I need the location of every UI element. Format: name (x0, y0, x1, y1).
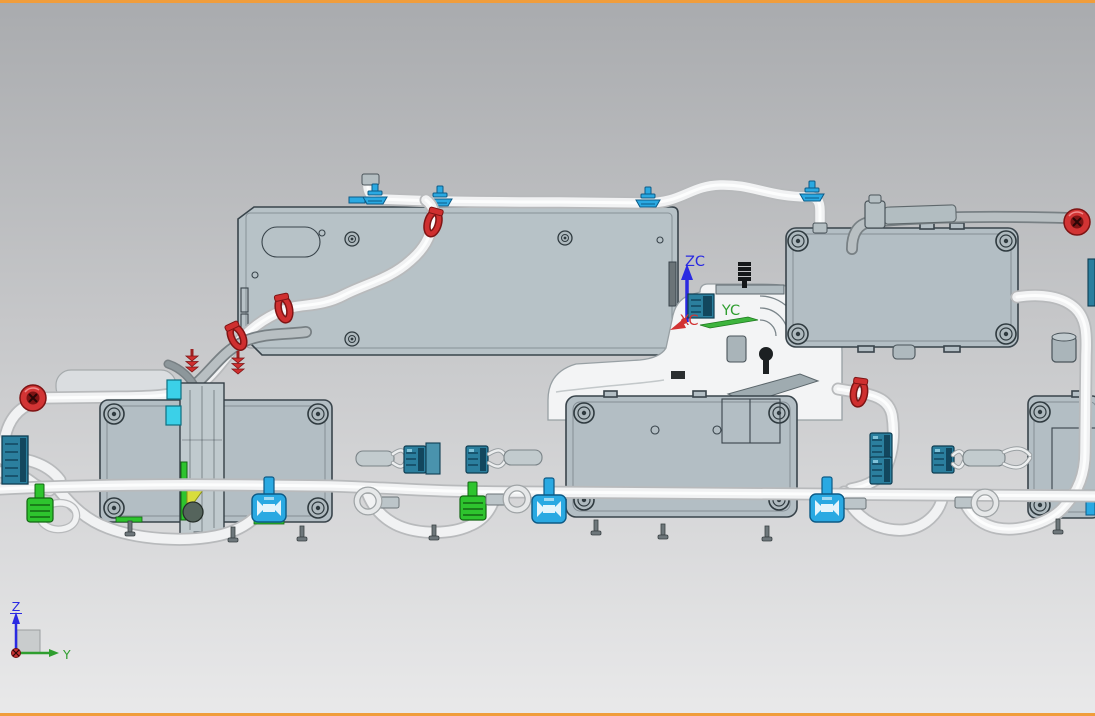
red-grommet-left[interactable] (20, 385, 46, 411)
pipe-foot-right[interactable] (1052, 333, 1076, 362)
module-screw-boss (574, 403, 594, 423)
red-grommet-right[interactable] (1064, 209, 1090, 235)
electrical-connector-teal[interactable] (404, 446, 426, 473)
pipe-sleeve-clamp[interactable] (884, 205, 957, 225)
panel-screw-boss (345, 332, 359, 346)
panel-screw-boss (558, 231, 572, 245)
module-screw-boss (788, 324, 808, 344)
wcs-z-label[interactable]: ZC (685, 254, 705, 270)
electrical-connector-teal[interactable] (466, 446, 488, 473)
hose-clip-small[interactable] (349, 197, 365, 203)
module-screw-boss (1030, 402, 1050, 422)
pipe-bracket[interactable] (865, 201, 885, 228)
viewport-top-border (0, 0, 1095, 3)
csys-plane-square (17, 630, 40, 653)
wcs-x-label[interactable]: XC (679, 313, 698, 329)
viewport-background (0, 0, 1095, 716)
model-scene: ZC YC XC Z Y (0, 0, 1095, 716)
wire-sleeve (356, 451, 394, 466)
module-screw-boss (104, 404, 124, 424)
module-screw-boss (308, 404, 328, 424)
panel-screw-boss (345, 232, 359, 246)
module-screw-boss (996, 231, 1016, 251)
module-screw-boss (769, 403, 789, 423)
connector-block-left-edge[interactable] (2, 436, 28, 484)
cyan-connector[interactable] (166, 406, 181, 425)
housing-cylinder-port (727, 336, 746, 362)
cyan-connector[interactable] (167, 380, 181, 399)
cad-viewport: ZC YC XC Z Y (0, 0, 1095, 716)
wcs-y-label[interactable]: YC (721, 303, 740, 319)
wire-sleeve (963, 450, 1005, 466)
dark-disc (183, 502, 203, 522)
hose-strap[interactable] (844, 498, 866, 509)
module-top-right[interactable] (786, 223, 1018, 359)
electrical-connector-teal[interactable] (870, 457, 892, 484)
module-screw-boss (788, 231, 808, 251)
electrical-connector-teal[interactable] (932, 446, 954, 473)
housing-top-plate (716, 285, 784, 294)
csys-z-label: Z (12, 599, 21, 614)
csys-y-label: Y (62, 647, 71, 662)
module-screw-boss (996, 324, 1016, 344)
module-screw-boss (308, 498, 328, 518)
wire-sleeve (504, 450, 542, 465)
hose-end-fitting[interactable] (813, 223, 827, 233)
panel-edge-slot (669, 262, 676, 306)
module-screw-boss (104, 498, 124, 518)
hose-end-fitting[interactable] (362, 174, 379, 185)
edge-connector[interactable] (1088, 259, 1095, 306)
electrical-connector-teal[interactable] (870, 433, 892, 460)
